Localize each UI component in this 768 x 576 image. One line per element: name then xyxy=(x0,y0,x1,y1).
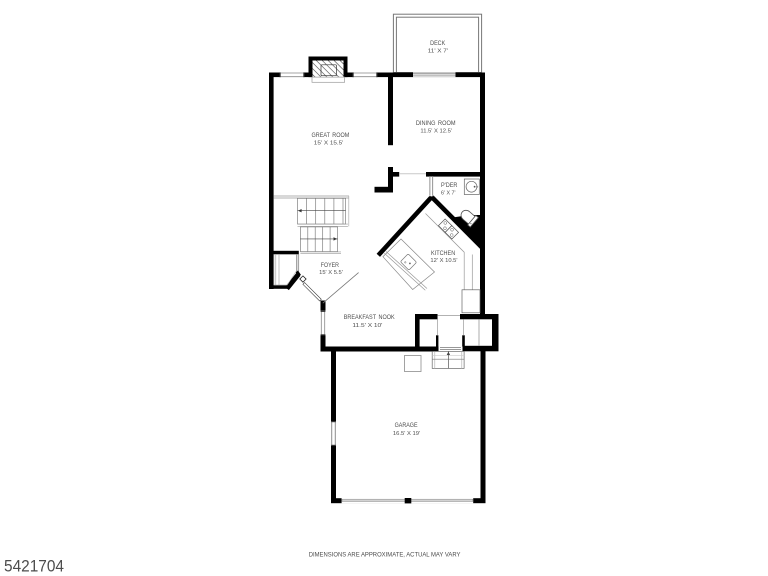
svg-text:KITCHEN: KITCHEN xyxy=(431,250,455,257)
svg-text:P'DER: P'DER xyxy=(441,182,458,189)
svg-text:DIMENSIONS ARE APPROXIMATE, AC: DIMENSIONS ARE APPROXIMATE, ACTUAL MAY V… xyxy=(309,552,461,559)
svg-text:BREAKFAST NOOK: BREAKFAST NOOK xyxy=(344,314,396,321)
svg-text:5421704: 5421704 xyxy=(4,557,64,575)
svg-text:15' X 15.5': 15' X 15.5' xyxy=(314,140,344,146)
svg-text:DINING ROOM: DINING ROOM xyxy=(416,120,456,127)
svg-text:GARAGE: GARAGE xyxy=(395,422,418,429)
svg-text:11' X 7': 11' X 7' xyxy=(428,49,448,55)
svg-text:11.5' X 12.5': 11.5' X 12.5' xyxy=(420,128,452,134)
svg-text:11.5' X 10': 11.5' X 10' xyxy=(352,323,382,329)
svg-text:6' X 7': 6' X 7' xyxy=(441,190,456,196)
svg-text:GREAT ROOM: GREAT ROOM xyxy=(312,132,350,139)
svg-text:FOYER: FOYER xyxy=(321,262,340,269)
svg-text:16.5' X 19': 16.5' X 19' xyxy=(393,431,420,437)
svg-text:12' X 10.5': 12' X 10.5' xyxy=(430,258,457,264)
svg-text:DECK: DECK xyxy=(430,40,446,47)
svg-text:15' X 5.5': 15' X 5.5' xyxy=(319,270,343,276)
